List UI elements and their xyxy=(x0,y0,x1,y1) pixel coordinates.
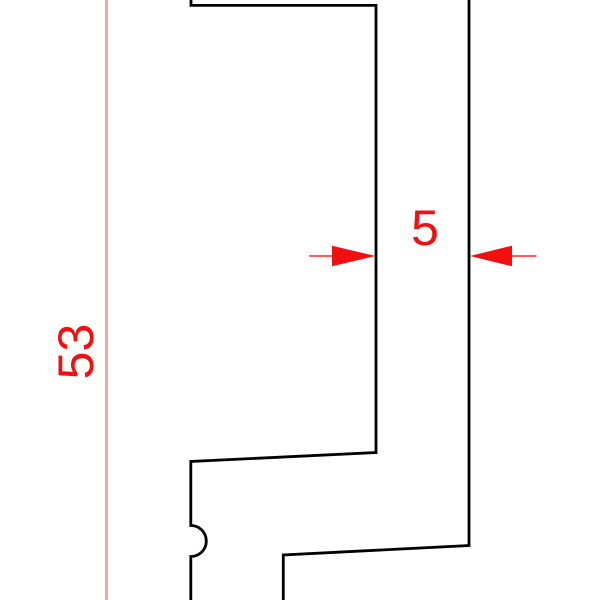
svg-text:5: 5 xyxy=(411,200,439,256)
svg-text:53: 53 xyxy=(48,324,104,380)
